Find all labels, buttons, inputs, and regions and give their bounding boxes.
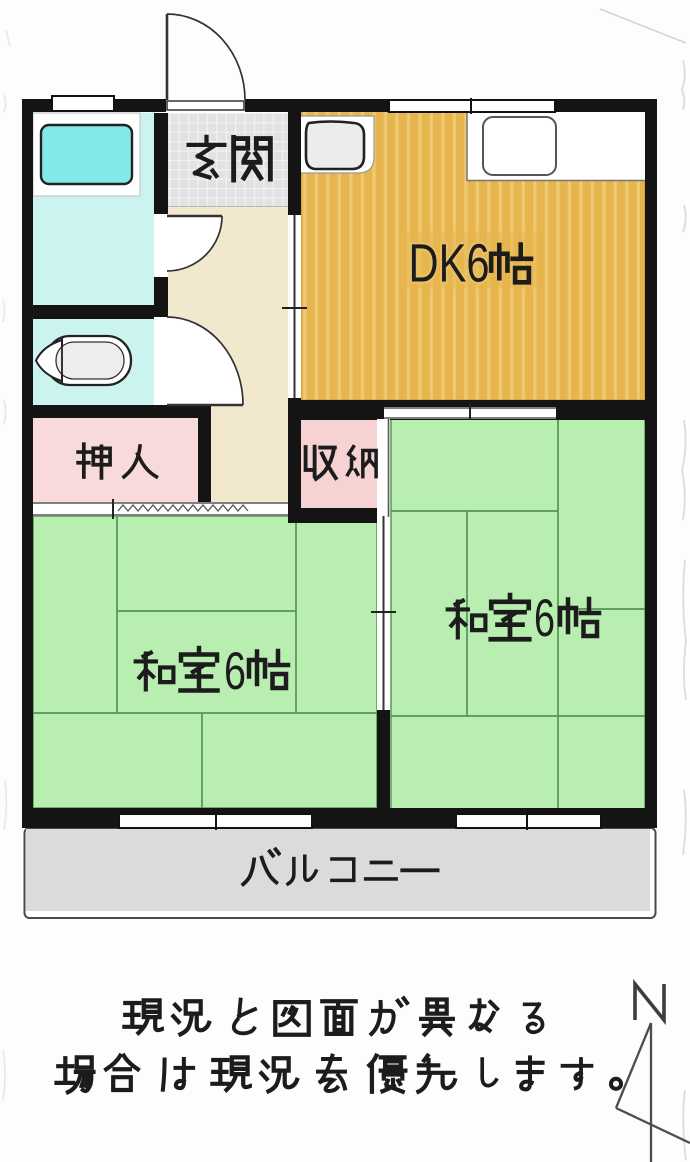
svg-text:6: 6 xyxy=(224,642,246,701)
svg-text:6: 6 xyxy=(534,589,555,648)
svg-text:DK6: DK6 xyxy=(409,233,490,293)
